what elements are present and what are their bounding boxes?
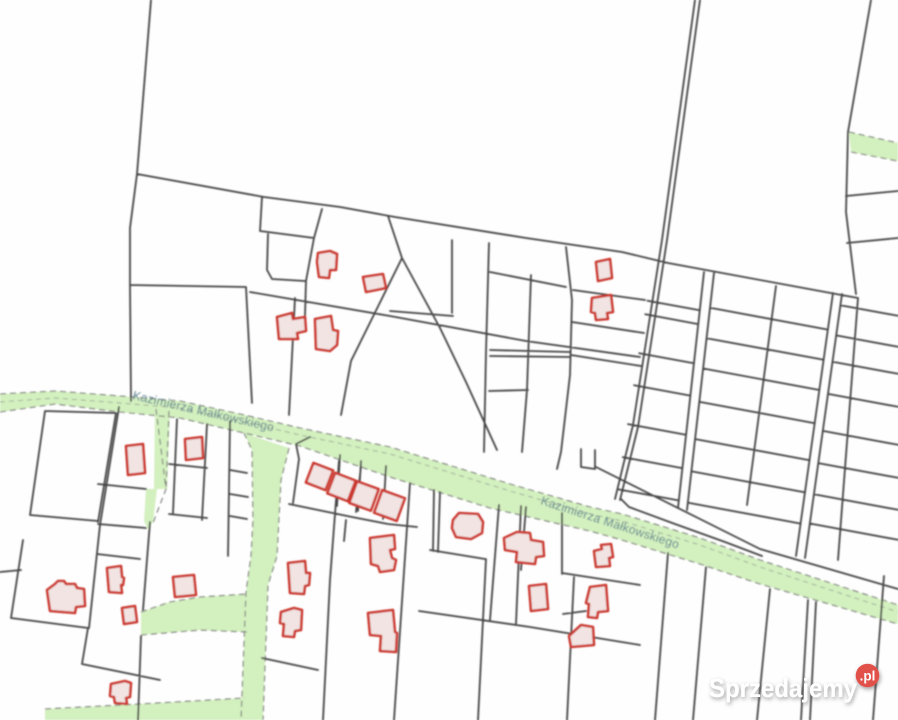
svg-text:.pl: .pl: [860, 669, 876, 684]
svg-text:Sprzedajemy: Sprzedajemy: [709, 673, 857, 703]
